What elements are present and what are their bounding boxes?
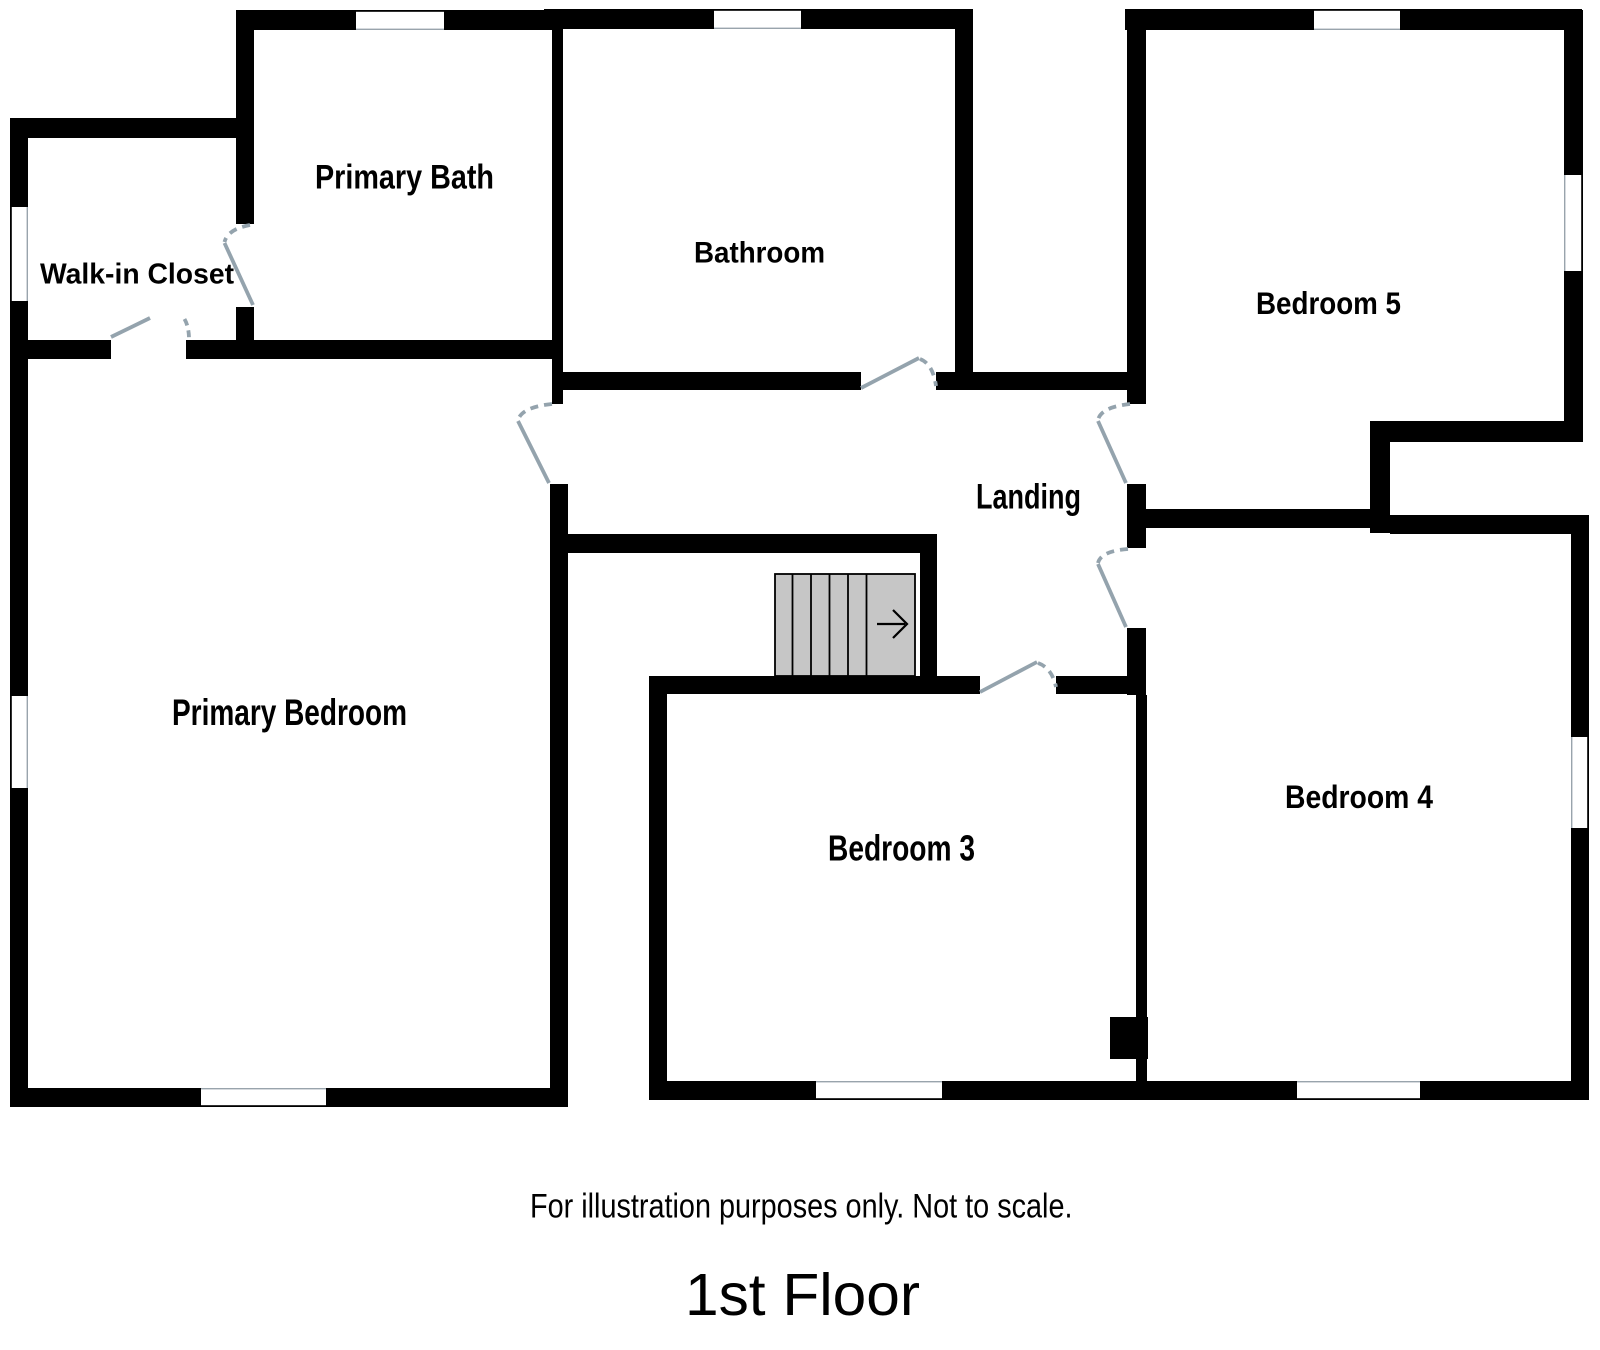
svg-text:Primary Bedroom: Primary Bedroom	[172, 692, 407, 733]
svg-text:Bathroom: Bathroom	[694, 237, 825, 270]
svg-text:For illustration purposes only: For illustration purposes only. Not to s…	[530, 1188, 1073, 1226]
svg-text:Walk-in Closet: Walk-in Closet	[40, 259, 234, 291]
svg-text:Primary Bath: Primary Bath	[315, 159, 494, 197]
svg-text:Bedroom 4: Bedroom 4	[1285, 779, 1433, 815]
svg-text:Bedroom 3: Bedroom 3	[828, 828, 975, 869]
svg-text:Bedroom 5: Bedroom 5	[1256, 286, 1401, 321]
svg-text:1st Floor: 1st Floor	[685, 1261, 920, 1328]
svg-text:Landing: Landing	[976, 478, 1081, 517]
